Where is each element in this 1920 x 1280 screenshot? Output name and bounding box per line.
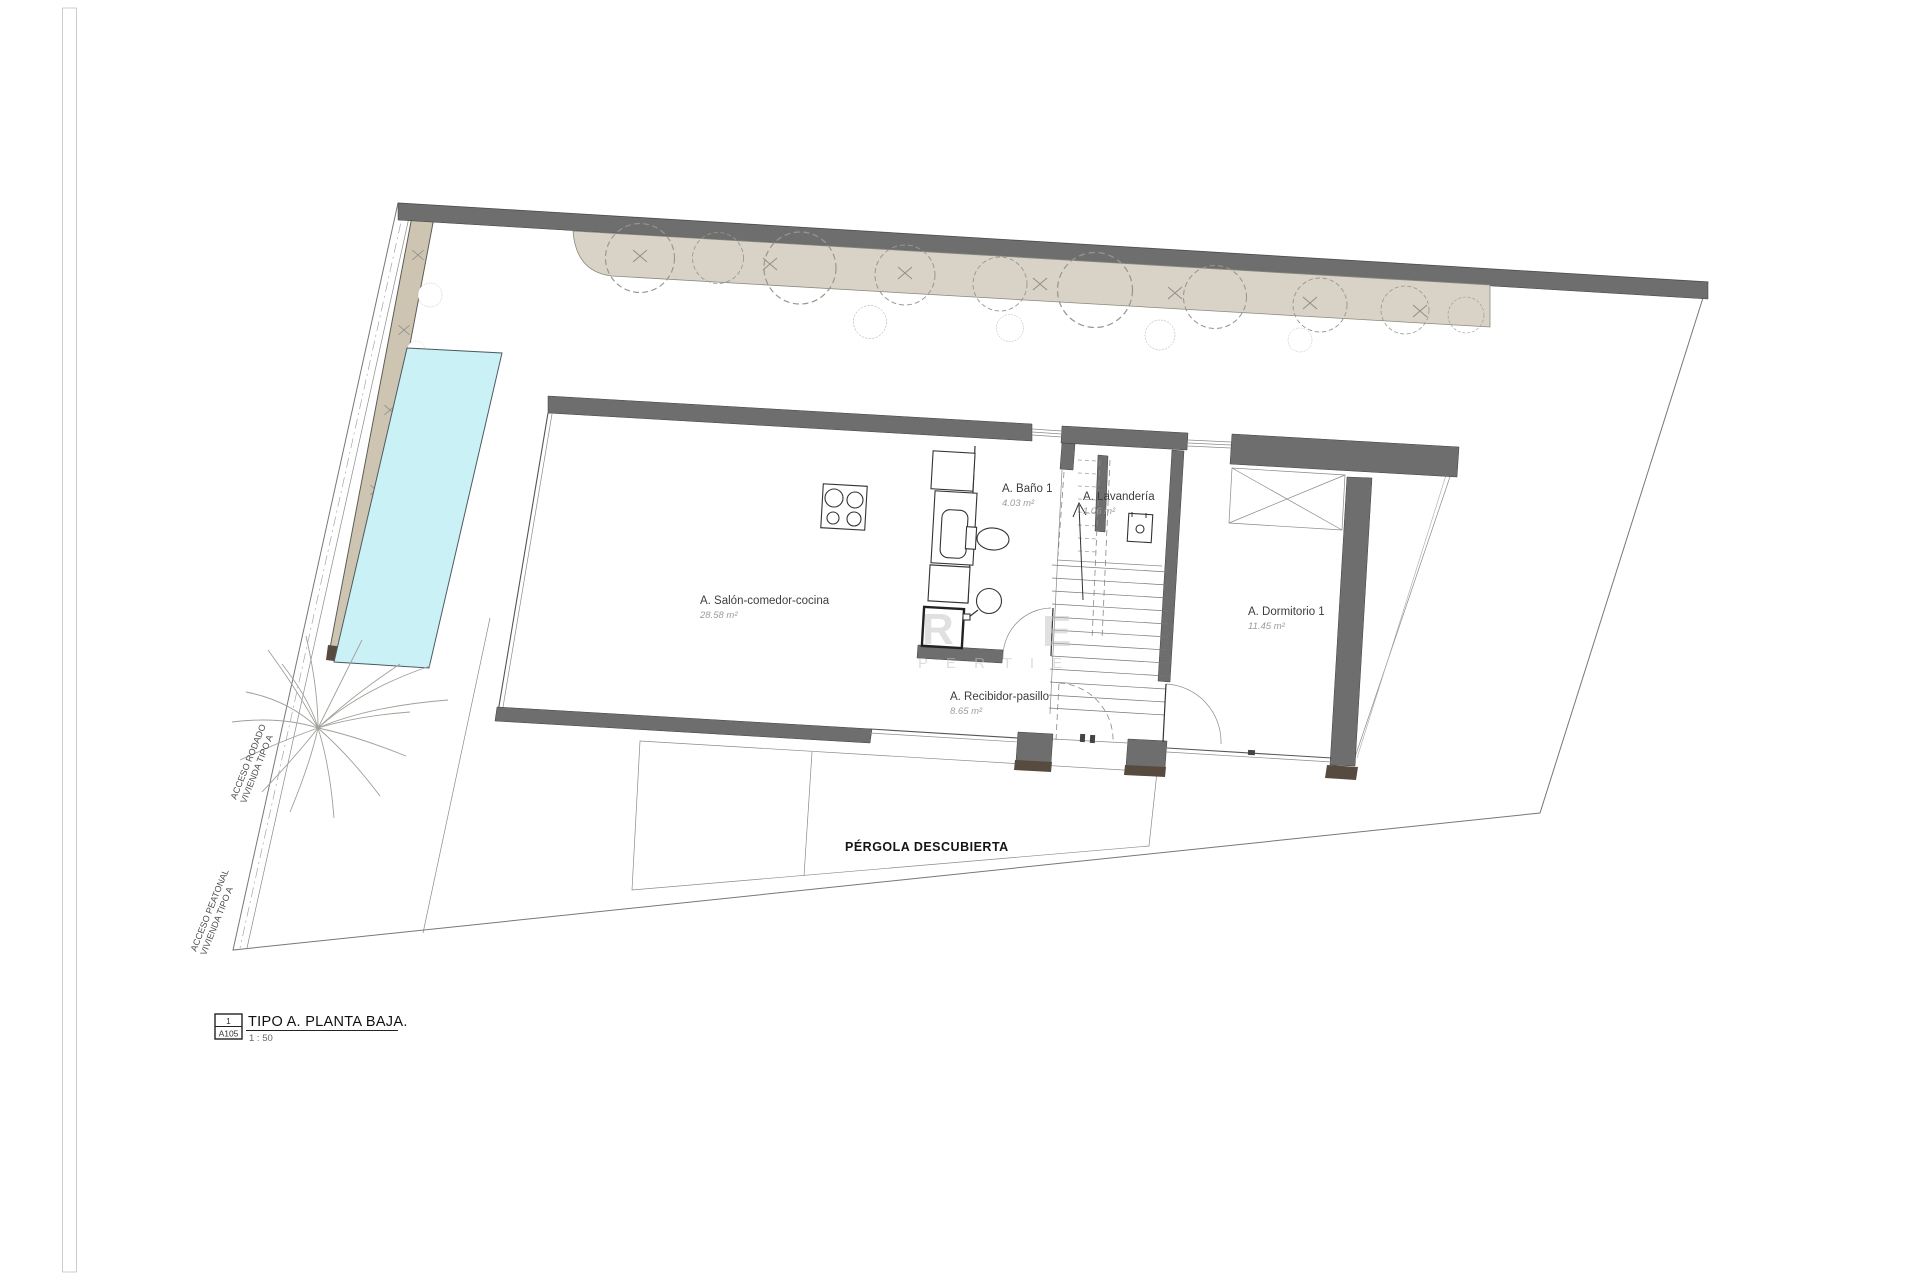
- washing-machine: [1127, 512, 1153, 543]
- watermark-letter: R: [922, 605, 954, 654]
- room-label-salon: A. Salón-comedor-cocina: [700, 595, 830, 607]
- floor-plan-canvas: R E P E R T I E A. Salón-comedor-cocina …: [0, 0, 1920, 1280]
- entry-pier-right: [1126, 739, 1167, 768]
- room-area-bath: 4.03 m²: [1002, 498, 1035, 509]
- wall-stub-laundry: [1060, 443, 1075, 470]
- room-label-bath: A. Baño 1: [1002, 483, 1053, 495]
- acceso-peatonal-label: ACCESO PEATONAL VIVIENDA TIPO A: [189, 866, 242, 957]
- pergola-label: PÉRGOLA DESCUBIERTA: [845, 839, 1009, 854]
- detail-number: 1: [226, 1016, 231, 1026]
- kitchen-sink: [940, 509, 969, 558]
- room-area-bedroom: 11.45 m²: [1248, 621, 1286, 632]
- room-area-laundry: 1.06 m²: [1083, 506, 1116, 517]
- room-area-hall: 8.65 m²: [950, 706, 983, 717]
- room-label-hall: A. Recibidor-pasillo: [950, 691, 1049, 703]
- sheet-code: A105: [219, 1029, 239, 1039]
- entry-pier-left-base: [1014, 760, 1052, 772]
- room-label-laundry: A. Lavandería: [1083, 491, 1155, 503]
- watermark-word: P E R T I E: [918, 655, 1069, 672]
- room-area-salon: 28.58 m²: [699, 610, 738, 621]
- drawing-scale: 1 : 50: [249, 1033, 273, 1044]
- watermark-letter: E: [1042, 607, 1071, 656]
- entry-pier-right-base: [1124, 765, 1166, 777]
- sheet-frame: [63, 8, 77, 1272]
- drawing-sheet: R E P E R T I E A. Salón-comedor-cocina …: [0, 0, 1920, 1280]
- room-label-bedroom: A. Dormitorio 1: [1248, 606, 1325, 618]
- cooktop: [821, 484, 867, 530]
- toilet: [965, 527, 1009, 551]
- title-block: 1 A105 TIPO A. PLANTA BAJA. 1 : 50: [215, 1014, 408, 1044]
- drawing-title: TIPO A. PLANTA BAJA.: [248, 1014, 408, 1030]
- entry-pier-left: [1016, 732, 1053, 763]
- wall-east-base: [1325, 765, 1358, 780]
